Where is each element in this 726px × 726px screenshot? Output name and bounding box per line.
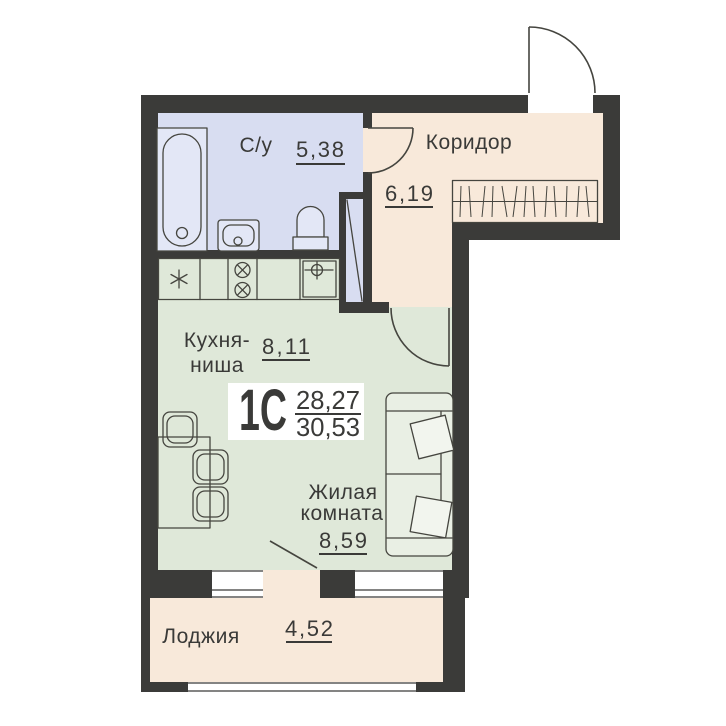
plan-area-lower: 30,53 xyxy=(296,412,360,442)
floor-plan-canvas: С/у 5,38 Коридор 6,19 Кухня- ниша 8,11 Ж… xyxy=(0,0,726,726)
living-area: 8,59 xyxy=(319,528,367,553)
corridor-area: 6,19 xyxy=(385,181,433,206)
bathroom-door-opening xyxy=(363,128,372,172)
entry-door-swing-icon xyxy=(529,27,595,93)
pillow-icon xyxy=(410,415,454,459)
plan-type-label: 1С xyxy=(239,378,287,443)
loggia-label: Лоджия xyxy=(162,625,239,648)
window-icon xyxy=(212,570,263,598)
sofa-icon xyxy=(386,393,454,556)
bathtub-icon xyxy=(157,128,207,251)
balcony-door-opening xyxy=(263,570,320,598)
plan-area-upper: 28,27 xyxy=(296,385,360,415)
loggia-window-icon xyxy=(188,682,416,692)
corridor-label: Коридор xyxy=(426,131,512,154)
bathroom-area: 5,38 xyxy=(296,137,344,162)
entry-opening xyxy=(528,95,593,113)
toilet-icon xyxy=(293,207,328,250)
pillow-icon xyxy=(410,496,452,538)
living-label-line2: комната xyxy=(301,502,384,525)
kitchen-label-line2: ниша xyxy=(190,354,244,377)
living-label-line1: Жилая xyxy=(309,481,378,504)
washbasin-icon xyxy=(218,220,259,251)
kitchen-label-line1: Кухня- xyxy=(184,329,250,352)
floor-plan: С/у 5,38 Коридор 6,19 Кухня- ниша 8,11 Ж… xyxy=(0,0,726,726)
loggia-area: 4,52 xyxy=(285,616,333,641)
bathroom-label: С/у xyxy=(240,134,273,157)
plan-code-badge: 1С 28,27 30,53 xyxy=(228,378,364,443)
window-icon xyxy=(355,570,443,598)
kitchen-area: 8,11 xyxy=(262,334,310,359)
